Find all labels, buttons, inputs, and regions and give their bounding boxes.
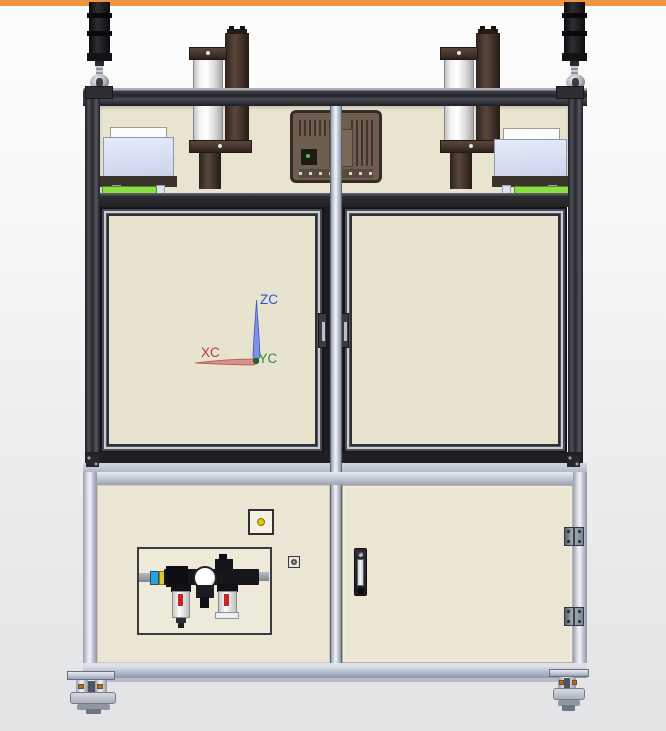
frl-lubricator-head — [215, 559, 233, 569]
leveling-foot-left[interactable] — [65, 669, 119, 717]
bracket-screw — [218, 144, 222, 148]
tower-ring — [562, 31, 587, 36]
latch-slot — [322, 322, 325, 341]
hinge-screw — [578, 620, 581, 623]
indicator-button-square[interactable] — [248, 509, 274, 535]
tower-base — [87, 53, 112, 61]
cabinet-bottom-rail — [83, 663, 587, 678]
cabinet-top-rail — [83, 472, 587, 485]
tower-ring — [87, 13, 112, 18]
hinge-screw — [567, 540, 570, 543]
z-axis-label: ZC — [260, 292, 278, 307]
cylinder-rod-right — [450, 153, 472, 189]
bracket-screw — [457, 51, 461, 55]
hmi-connector-module — [301, 149, 317, 165]
hinge-screw — [567, 610, 570, 613]
center-post-upper[interactable] — [330, 106, 342, 472]
frl-lubricator-ring — [215, 612, 239, 619]
upper-door-right[interactable] — [343, 207, 567, 453]
foot-orange-nut — [572, 680, 577, 685]
hmi-vent-grid — [299, 120, 331, 136]
tower-mount-bracket — [556, 86, 584, 99]
cabinet-bottom-step — [100, 678, 566, 682]
cylinder-bolt — [240, 26, 245, 30]
tower-ring — [562, 13, 587, 18]
handle-lock-mark — [358, 588, 364, 594]
frl-lubricator-cap — [219, 554, 227, 560]
frl-filter-drain-tip — [178, 623, 184, 628]
frame-post-right[interactable] — [568, 88, 583, 472]
door-hinge-top[interactable] — [564, 527, 584, 546]
hinge-pin — [573, 608, 575, 625]
cabinet-rail-right — [573, 472, 587, 665]
indicator-dot — [257, 518, 265, 526]
corner-gusset — [567, 455, 580, 467]
foot-plate — [67, 671, 115, 680]
cabinet-rail-left — [83, 472, 97, 665]
cad-viewport[interactable]: ZC XC YC — [0, 0, 666, 731]
foot-stem — [562, 705, 575, 711]
top-frame-beam[interactable] — [83, 88, 587, 106]
frl-filter-bowl[interactable] — [172, 591, 190, 618]
foot-stem — [86, 709, 101, 714]
door-latch-left[interactable] — [318, 313, 327, 348]
handle-slot — [357, 559, 364, 586]
upper-door-right-panel — [352, 216, 558, 444]
foot-orange-nut — [559, 680, 564, 685]
hmi-status-led — [306, 154, 310, 158]
latch-slot — [344, 322, 347, 341]
frl-regulator-tab — [200, 597, 209, 608]
hinge-screw — [578, 530, 581, 533]
bracket-screw — [469, 144, 473, 148]
cylinder-bolt — [229, 26, 234, 30]
panel-fitting-square[interactable] — [288, 556, 300, 568]
bowl-level-arrow — [224, 594, 229, 606]
bracket-screw — [206, 51, 210, 55]
leveling-foot-right[interactable] — [547, 667, 593, 713]
hmi-vent-grid — [351, 120, 375, 166]
frl-outlet-tube — [259, 572, 269, 581]
frl-blue-fitting — [150, 571, 159, 585]
cabinet-door-right[interactable] — [342, 485, 573, 663]
cylinder-rod-left — [199, 153, 221, 189]
hinge-screw — [567, 620, 570, 623]
foot-spacer — [88, 681, 95, 692]
cylinder-bolt — [480, 26, 485, 30]
hinge-pin — [573, 528, 575, 545]
handle-screw — [358, 552, 363, 557]
door-handle[interactable] — [354, 548, 367, 596]
foot-orange-nut — [97, 684, 103, 689]
bowl-level-arrow — [178, 594, 183, 606]
y-axis-label: YC — [259, 351, 278, 366]
foot-orange-nut — [78, 684, 84, 689]
x-axis-label: XC — [201, 345, 220, 360]
frame-post-left[interactable] — [85, 88, 100, 472]
door-hinge-bottom[interactable] — [564, 607, 584, 626]
hinge-screw — [578, 610, 581, 613]
hinge-screw — [578, 540, 581, 543]
tower-mount-bracket — [85, 86, 113, 99]
foot-pad — [553, 688, 585, 700]
corner-gusset — [86, 455, 99, 467]
tower-ring — [87, 31, 112, 36]
cylinder-bolt — [491, 26, 496, 30]
foot-pad — [70, 692, 116, 704]
frl-lubricator-bowl[interactable] — [218, 591, 237, 614]
hinge-screw — [567, 530, 570, 533]
foot-plate — [549, 669, 589, 677]
wcs-triad[interactable]: ZC XC YC — [185, 283, 305, 375]
center-post-lower — [330, 485, 342, 663]
tower-base — [562, 53, 587, 61]
fitting-dot — [293, 561, 295, 563]
